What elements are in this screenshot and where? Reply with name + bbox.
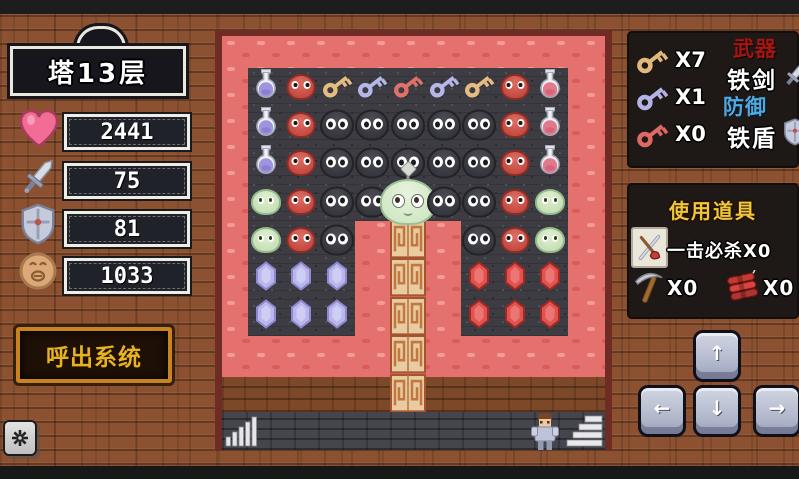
dpad-down-button[interactable]: ↓ [693,385,741,437]
hp-value: 2441 [101,120,154,145]
gold-value-box: 1033 [64,258,190,294]
dpad-right-button[interactable]: → [753,385,799,437]
up-arrow-icon: ↑ [709,341,726,365]
tile-gem-blue[interactable] [325,261,349,295]
tile-gem-blue[interactable] [289,261,313,295]
pickaxe-count: X0 [667,276,698,300]
tile-slime-black[interactable] [320,110,354,141]
weapon-name: 铁剑 [727,61,777,95]
tile-gem-red[interactable] [467,299,491,333]
right-arrow-icon: → [769,396,786,420]
tile-slime-black[interactable] [391,110,425,141]
tile-gem-blue[interactable] [325,299,349,333]
level-bars-icon [225,415,257,447]
floor-title: 塔13层 [48,53,148,90]
tile-slime-green[interactable] [251,189,281,215]
tile-slime-black[interactable] [427,186,461,217]
equipped-shield-icon [782,118,799,150]
dynamite-count: X0 [763,276,794,300]
tile-gem-red[interactable] [503,299,527,333]
tile-gem-blue[interactable] [254,261,278,295]
dpad-left-button[interactable]: ← [638,385,686,437]
carpet-tile [390,374,426,412]
tile-slime-black[interactable] [427,148,461,179]
tile-potion-red[interactable] [536,68,564,106]
tile-gem-red[interactable] [503,261,527,295]
tile-slime-red[interactable] [500,189,529,215]
defense-value: 81 [114,217,141,242]
floor-banner: 塔13层 [10,46,186,96]
crossed-weapons-icon [636,232,663,263]
hero-sprite[interactable] [530,412,560,452]
equipped-sword-icon [781,58,799,94]
tile-slime-black[interactable] [462,186,496,217]
tile-slime-green[interactable] [535,189,565,215]
tile-key-red[interactable] [391,69,425,105]
settings-key-button[interactable] [3,420,37,456]
blue-key-icon [633,80,671,114]
pickaxe-icon [633,267,665,305]
sword-icon [18,155,60,197]
yellow-key-count: X7 [675,48,706,72]
call-system-button[interactable]: 呼出系统 [16,327,172,383]
armor-label: 防御 [723,91,767,121]
game-screen: 塔13层 2441 75 81 [0,0,799,479]
defense-value-box: 81 [64,211,190,247]
use-items-title: 使用道具 [627,195,799,224]
tile-gem-red[interactable] [538,261,562,295]
hp-value-box: 2441 [64,114,190,150]
board-entities [222,36,605,377]
tile-slime-red[interactable] [287,189,316,215]
armor-name: 铁盾 [727,119,777,153]
tile-slime-black[interactable] [427,110,461,141]
tile-slime-green[interactable] [535,227,565,253]
tile-slime-red[interactable] [500,227,529,253]
call-system-label: 呼出系统 [46,338,142,372]
pickaxe-item-button[interactable] [633,267,665,309]
tile-key-blue[interactable] [427,69,461,105]
dynamite-icon [725,270,761,302]
tile-key-yellow[interactable] [320,69,354,105]
tile-slime-red[interactable] [500,74,529,100]
tile-slime-red[interactable] [287,112,316,138]
tile-slime-black[interactable] [355,110,389,141]
tile-potion-blue[interactable] [252,144,280,182]
tile-slime-black[interactable] [462,148,496,179]
tile-slime-black[interactable] [462,110,496,141]
keys-equipment-panel: X7 X1 X0 [627,31,799,168]
shield-icon [18,203,60,245]
tile-slime-red[interactable] [287,74,316,100]
letterbox-bottom [0,466,799,479]
tile-key-yellow[interactable] [462,69,496,105]
down-arrow-icon: ↓ [709,396,726,420]
tile-slime-red[interactable] [287,150,316,176]
tile-key-blue[interactable] [355,69,389,105]
tile-gem-red[interactable] [538,299,562,333]
tile-gem-blue[interactable] [254,299,278,333]
use-items-panel: 使用道具 一击必杀X0 X0 [627,183,799,319]
tile-slime-black[interactable] [355,148,389,179]
blue-key-row: X1 [633,80,706,114]
gold-value: 1033 [101,264,154,289]
left-arrow-icon: ← [654,396,671,420]
tile-slime-red[interactable] [500,150,529,176]
tile-potion-blue[interactable] [252,68,280,106]
letterbox-top [0,0,799,14]
heart-icon [18,108,60,150]
one-hit-kill-label: 一击必杀X0 [667,237,771,263]
one-hit-kill-item-button[interactable] [631,227,668,268]
tile-slime-green[interactable] [251,227,281,253]
game-board [215,30,612,450]
red-key-count: X0 [675,122,706,146]
tile-potion-red[interactable] [536,144,564,182]
red-key-icon [633,117,671,151]
yellow-key-icon [633,43,671,77]
red-key-row: X0 [633,117,706,151]
gear-icon [10,428,30,448]
tile-potion-blue[interactable] [252,106,280,144]
coin-icon [18,251,60,293]
tile-slime-black[interactable] [320,224,354,255]
weapon-label: 武器 [733,33,777,63]
tile-gem-red[interactable] [467,261,491,295]
attack-value-box: 75 [64,163,190,199]
tile-slime-red[interactable] [287,227,316,253]
dpad-up-button[interactable]: ↑ [693,330,741,382]
yellow-key-row: X7 [633,43,706,77]
attack-value: 75 [114,169,141,194]
blue-key-count: X1 [675,85,706,109]
tile-slime-black[interactable] [320,186,354,217]
tile-slime-black[interactable] [462,224,496,255]
tile-slime-black[interactable] [320,148,354,179]
tile-potion-red[interactable] [536,106,564,144]
stairs-icon[interactable] [566,415,603,448]
dynamite-item-button[interactable] [725,270,761,306]
tile-gem-blue[interactable] [289,299,313,333]
tile-slime-red[interactable] [500,112,529,138]
entry-corridor [222,412,605,450]
